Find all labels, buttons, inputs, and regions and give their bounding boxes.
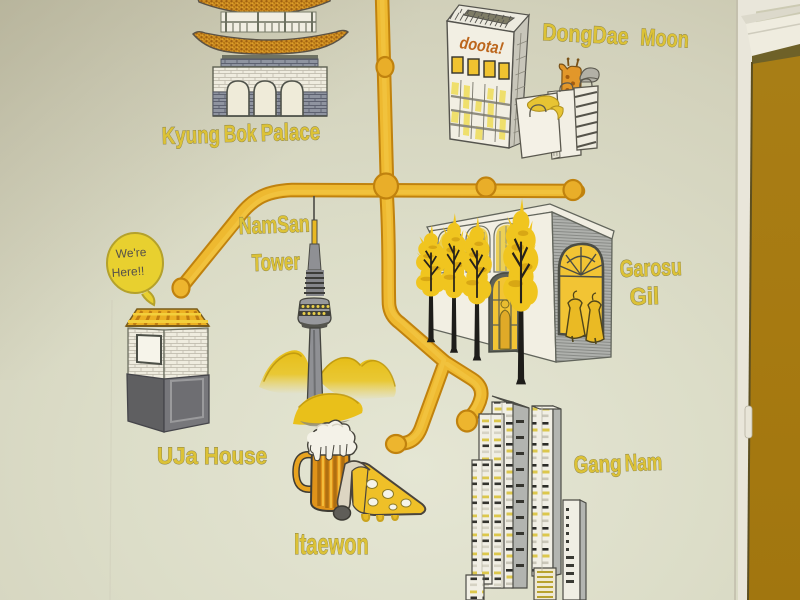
svg-text:DongDae: DongDae (542, 18, 630, 50)
svg-text:Palace: Palace (260, 118, 320, 146)
svg-text:Gil: Gil (629, 282, 659, 310)
svg-text:Garosu: Garosu (619, 254, 682, 282)
svg-text:Itaewon: Itaewon (294, 528, 369, 561)
svg-text:NamSan: NamSan (238, 211, 310, 240)
svg-text:We're: We're (115, 245, 147, 261)
svg-text:Kyung: Kyung (161, 121, 220, 149)
svg-text:UJa: UJa (157, 442, 199, 469)
svg-text:Tower: Tower (251, 248, 300, 276)
svg-text:Moon: Moon (640, 24, 690, 54)
svg-text:Gang: Gang (573, 450, 622, 478)
svg-text:Bok: Bok (223, 120, 257, 147)
svg-text:Nam: Nam (624, 449, 662, 477)
svg-text:Here!!: Here!! (111, 264, 145, 280)
svg-text:House: House (204, 443, 267, 470)
